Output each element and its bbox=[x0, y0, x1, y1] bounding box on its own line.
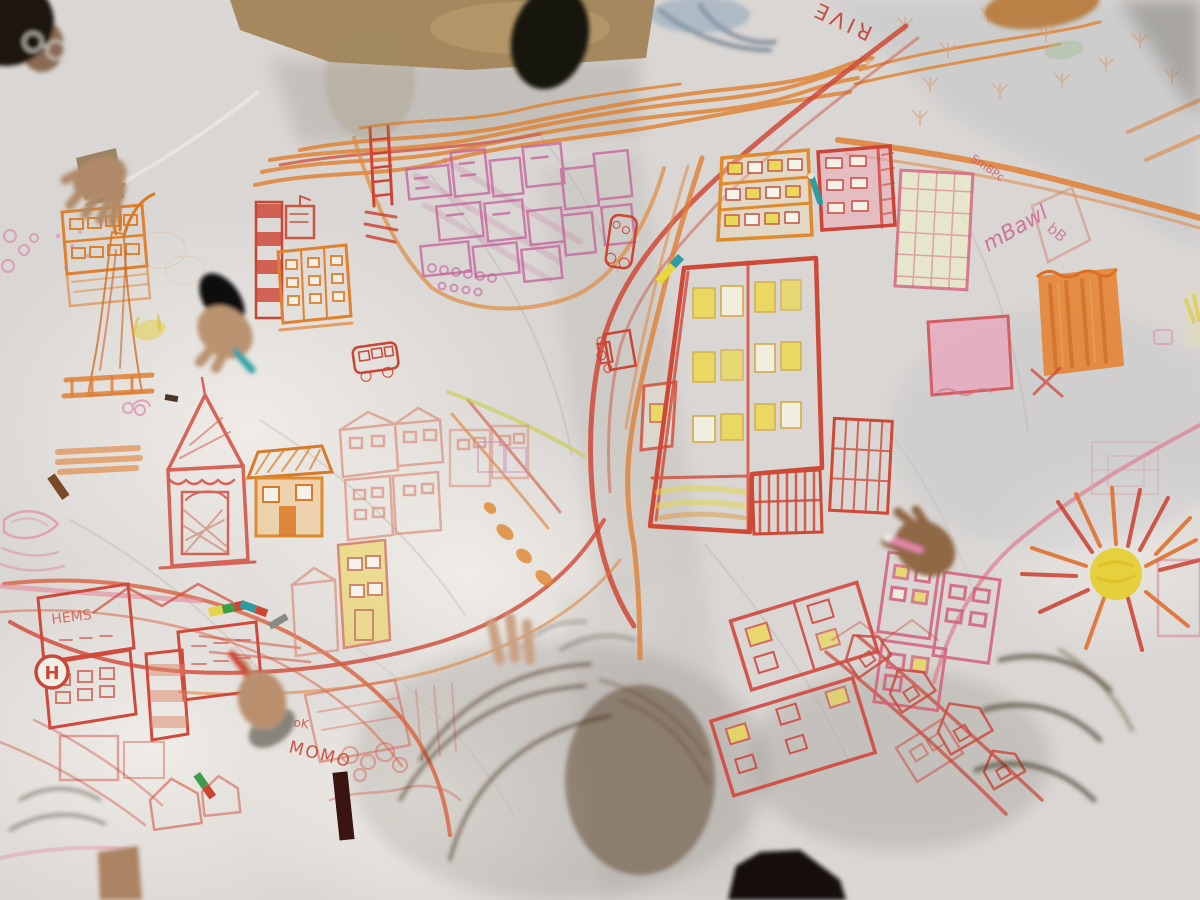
pink-building bbox=[818, 146, 895, 230]
yellow-house-drawing bbox=[338, 540, 390, 648]
orange-window-building bbox=[718, 150, 812, 240]
house-door bbox=[279, 506, 296, 536]
scene-svg: RIVE bbox=[0, 0, 1200, 900]
grid-building-right bbox=[895, 170, 973, 290]
yellow-edge-marks bbox=[1186, 290, 1200, 348]
photo-canvas: RIVE bbox=[0, 0, 1200, 900]
svg-text:H: H bbox=[44, 663, 59, 684]
pink-filled-rect bbox=[928, 316, 1012, 395]
hospital-sign: H bbox=[36, 656, 68, 688]
child-arm-skin bbox=[98, 846, 142, 900]
